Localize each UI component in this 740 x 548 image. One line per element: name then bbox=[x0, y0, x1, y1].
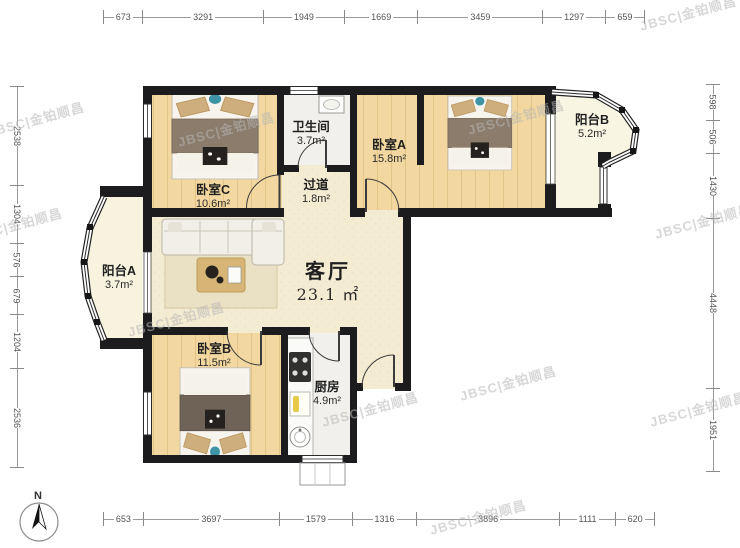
floorplan-page: 卧室C 10.6m² 卫生间 3.7m² 过道 1.8m² 卧室A 15.8m²… bbox=[0, 0, 740, 548]
bedroom-c-window bbox=[144, 104, 152, 138]
kitchen-bay-box bbox=[300, 463, 345, 485]
bedroom-b-window bbox=[144, 392, 152, 435]
stove-icon bbox=[289, 352, 311, 382]
dim-segment: 1430 bbox=[706, 153, 720, 218]
dim-segment: 1204 bbox=[10, 314, 24, 369]
dimension-ruler-bottom: 653 3697 1579 1316 3896 1111 620 bbox=[103, 512, 655, 526]
bed-bedroom-a bbox=[448, 96, 512, 170]
balcony-b-side-window bbox=[600, 167, 607, 204]
dim-segment: 679 bbox=[10, 276, 24, 313]
floor-plan-drawing bbox=[0, 0, 740, 548]
dim-segment: 3896 bbox=[416, 512, 558, 526]
dim-segment: 1579 bbox=[279, 512, 352, 526]
coffee-table bbox=[197, 258, 245, 292]
dim-segment: 1304 bbox=[10, 185, 24, 243]
dim-segment: 1297 bbox=[542, 10, 605, 24]
kitchen-counter bbox=[287, 338, 313, 456]
dim-segment: 4448 bbox=[706, 218, 720, 388]
bed-bedroom-b bbox=[180, 368, 250, 458]
dim-segment: 3697 bbox=[143, 512, 279, 526]
dim-segment: 1949 bbox=[263, 10, 344, 24]
dimension-ruler-right: 598 506 1430 4448 1951 bbox=[706, 84, 720, 472]
dim-segment: 3459 bbox=[417, 10, 542, 24]
dim-segment: 2538 bbox=[10, 86, 24, 185]
dim-segment: 506 bbox=[706, 120, 720, 153]
dim-segment: 1669 bbox=[344, 10, 417, 24]
dim-segment: 659 bbox=[605, 10, 645, 24]
floor-entry bbox=[352, 333, 410, 389]
dim-segment: 653 bbox=[103, 512, 143, 526]
dim-segment: 576 bbox=[10, 243, 24, 277]
dim-segment: 3291 bbox=[142, 10, 262, 24]
dim-segment: 1111 bbox=[559, 512, 616, 526]
compass-icon bbox=[20, 503, 58, 541]
dimension-ruler-top: 673 3291 1949 1669 3459 1297 659 bbox=[103, 10, 645, 24]
living-balcony-a-slider bbox=[144, 252, 151, 313]
dim-segment: 673 bbox=[103, 10, 142, 24]
bed-bedroom-c bbox=[172, 93, 258, 179]
kitchen-bottom-window bbox=[302, 456, 343, 463]
bathroom-top-window bbox=[290, 87, 318, 95]
compass-north-label: N bbox=[34, 490, 42, 502]
bedroom-a-balcony-b-slider bbox=[546, 114, 555, 184]
dim-segment: 2536 bbox=[10, 368, 24, 468]
dim-segment: 1316 bbox=[352, 512, 417, 526]
dimension-ruler-left: 2538 1304 576 679 1204 2536 bbox=[10, 86, 24, 468]
dim-segment: 1951 bbox=[706, 388, 720, 472]
floor-hallway bbox=[282, 165, 355, 213]
bathroom-sink bbox=[319, 96, 344, 113]
dim-segment: 598 bbox=[706, 84, 720, 120]
dim-segment: 620 bbox=[615, 512, 655, 526]
